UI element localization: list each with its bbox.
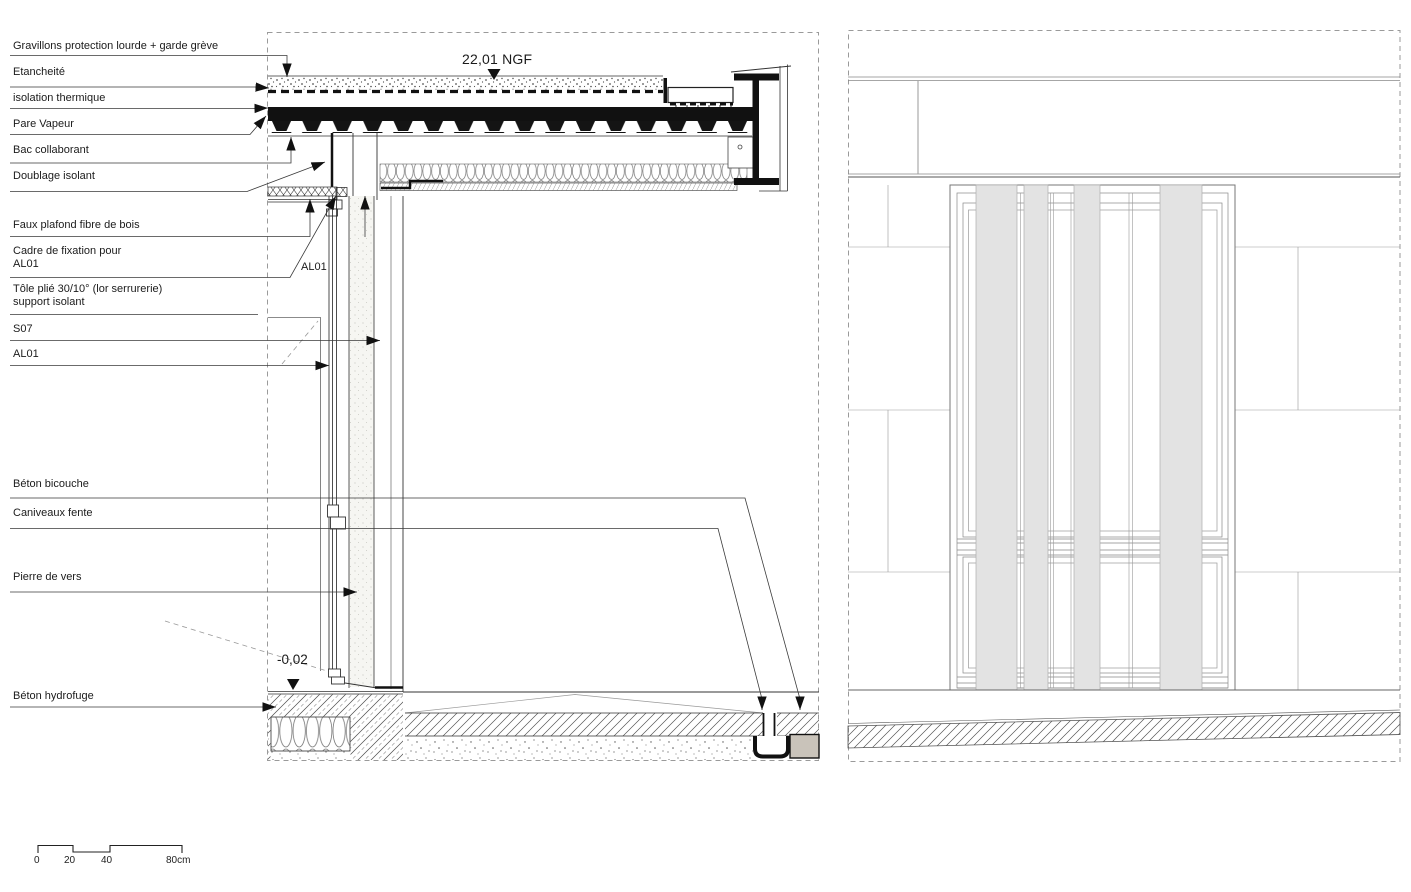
window-ref-text: AL01 <box>301 261 327 273</box>
granular-base <box>405 736 753 760</box>
wall-and-window <box>328 196 404 692</box>
exterior-ground <box>403 692 819 760</box>
label-etancheite: Etancheité <box>13 66 65 79</box>
roof-insulation-roll <box>380 164 747 182</box>
elevation-frame <box>849 31 1401 762</box>
fixing-frame-detail <box>336 188 347 197</box>
scale-tick-20: 20 <box>64 855 75 866</box>
louver-stripes <box>976 185 1202 690</box>
leader-lines <box>10 56 800 711</box>
facade-window <box>950 185 1235 690</box>
kerb-block <box>790 735 819 759</box>
roof-level-text: 22,01 NGF <box>462 51 532 67</box>
label-beton-hydrofuge: Béton hydrofuge <box>13 690 94 703</box>
label-beton-bicouche: Béton bicouche <box>13 478 89 491</box>
transom-connector <box>328 505 339 517</box>
ground-level-text: -0,02 <box>277 652 308 667</box>
scale-bar <box>38 846 182 854</box>
interior-floor <box>268 692 403 761</box>
two-layer-concrete-paving <box>405 713 763 736</box>
label-doublage-isolant: Doublage isolant <box>13 170 95 183</box>
label-cadre-fixation: Cadre de fixation pour AL01 <box>13 245 148 271</box>
label-s07: S07 <box>13 323 33 336</box>
label-gravillons: Gravillons protection lourde + garde grè… <box>13 40 258 53</box>
doublage-isolant-band <box>268 187 337 196</box>
roof-buildup <box>268 76 755 200</box>
drawing-linework <box>0 0 1411 892</box>
pavement-strip <box>848 713 1400 749</box>
drain-channel <box>755 736 788 757</box>
steel-deck-ribs <box>268 121 755 133</box>
interior-ceiling <box>268 187 347 216</box>
floor-insulation-block <box>271 717 350 751</box>
rooflight-curb <box>668 88 733 103</box>
label-pierre-de-vers: Pierre de vers <box>13 571 81 584</box>
label-pare-vapeur: Pare Vapeur <box>13 118 74 131</box>
scale-tick-40: 40 <box>101 855 112 866</box>
label-isolation-thermique: isolation thermique <box>13 92 105 105</box>
vapour-barrier-deck <box>268 107 755 121</box>
label-bac-collaborant: Bac collaborant <box>13 144 89 157</box>
sill-detail <box>329 669 341 677</box>
slope-formation <box>405 695 763 714</box>
label-faux-plafond: Faux plafond fibre de bois <box>13 219 140 232</box>
scale-tick-80: 80cm <box>166 855 190 866</box>
elevation-panel <box>848 31 1400 762</box>
scale-tick-0: 0 <box>34 855 40 866</box>
soffit-band <box>380 183 737 191</box>
ground-level-marker <box>287 679 300 690</box>
label-tole-pliee: Tôle plié 30/10° (lor serrurerie) suppor… <box>13 283 168 309</box>
label-caniveaux-fente: Caniveaux fente <box>13 507 93 520</box>
interior-reveal-line <box>268 318 321 672</box>
stone-joints <box>848 185 1400 690</box>
facade-bands <box>848 77 1400 177</box>
section-panel <box>10 33 819 761</box>
drawing-sheet: Gravillons protection lourde + garde grè… <box>0 0 1411 892</box>
gravel-layer <box>268 77 663 90</box>
label-al01: AL01 <box>13 348 39 361</box>
